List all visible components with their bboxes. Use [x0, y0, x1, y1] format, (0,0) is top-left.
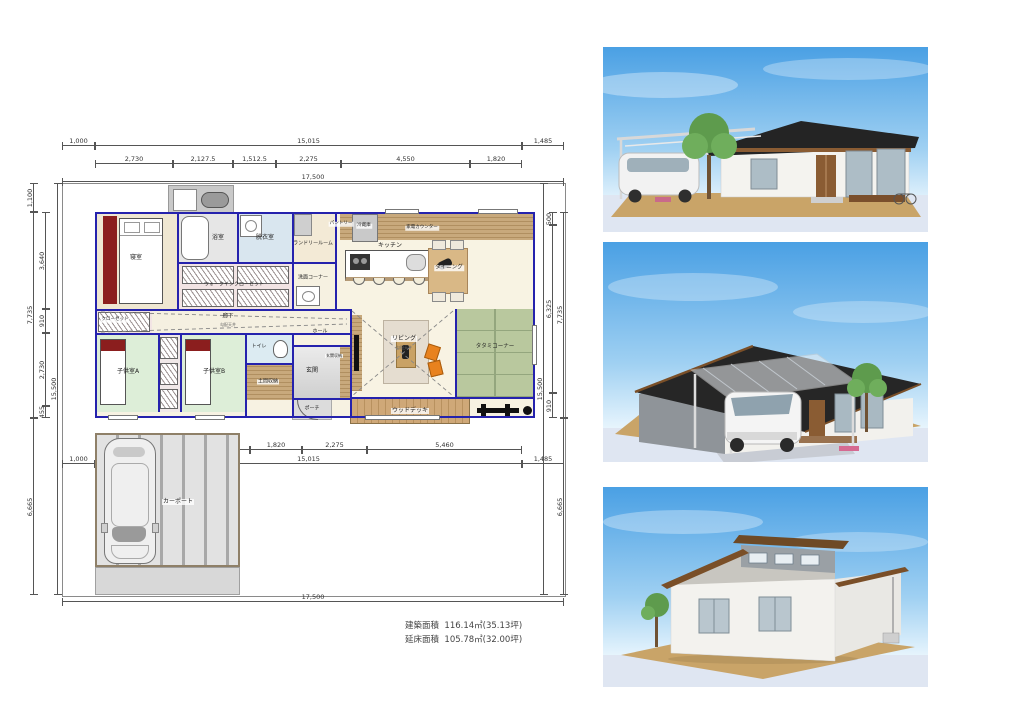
car-mirror: [152, 523, 159, 533]
dim-top-seg1: 2,730: [95, 163, 173, 164]
dim-label: 2,275: [299, 155, 318, 163]
dim-label: 6,325: [545, 300, 553, 319]
dim-label: 17,500: [302, 173, 325, 181]
label-kids-a: 子供室A: [117, 369, 139, 375]
building-area-label: 建築面積: [405, 621, 439, 631]
dim-label: 15,500: [50, 378, 58, 401]
dim-label: 17,500: [302, 593, 325, 601]
cloud: [603, 510, 763, 534]
window: [846, 151, 872, 197]
cloud: [608, 273, 778, 301]
dim-label: 1,000: [69, 137, 88, 145]
heater-box: [173, 189, 197, 211]
car-roof-line: [111, 463, 149, 527]
heater-tank: [201, 192, 229, 208]
car-top-view: [104, 438, 156, 564]
dim-label: 15,500: [536, 378, 544, 401]
deck-front: [799, 436, 857, 443]
dim-label: 1,512.5: [242, 155, 267, 163]
dim-bottom-total: 17,500: [62, 601, 564, 602]
tree-foliage: [641, 606, 655, 620]
house-rear-wall: [671, 579, 835, 661]
planter-box: [849, 195, 905, 202]
tree-foliage: [869, 379, 887, 397]
area-summary: 建築面積 116.14㎡(35.13坪) 延床面積 105.78㎡(32.00坪…: [405, 620, 522, 647]
window: [365, 415, 440, 420]
van-wheel: [780, 438, 794, 452]
label-wood-deck: ウッドデッキ: [391, 408, 429, 414]
render-rear-svg: [603, 487, 928, 687]
floor-area-row: 延床面積 105.78㎡(32.00坪): [405, 634, 522, 648]
dim-right-bottom: 6,665: [563, 418, 564, 595]
dim-right-sub1: 500: [552, 212, 553, 225]
building-area-value: 116.14㎡(35.13坪): [444, 621, 522, 631]
concrete-apron: [95, 567, 240, 595]
van-windows: [627, 158, 689, 172]
label-living: リビング: [391, 336, 417, 342]
van-wheel: [679, 190, 692, 203]
tree-trunk: [707, 155, 711, 199]
window: [385, 209, 419, 214]
label-bedroom: 寝室: [130, 255, 142, 261]
exterior-render-side: [603, 242, 928, 462]
dim-label: 2,127.5: [191, 155, 216, 163]
dim-left-main: 7,735: [33, 212, 34, 418]
dim-right-sub3: 910: [552, 393, 553, 418]
dim-label: 1,100: [26, 188, 34, 207]
window: [108, 415, 138, 420]
car-rear-window: [113, 447, 145, 457]
dim-label: 1,820: [487, 155, 506, 163]
dim-top-width: 15,015: [95, 145, 522, 146]
window: [877, 149, 905, 197]
dim-top-offset-left: 1,000: [62, 145, 95, 146]
label-bath: 浴室: [212, 235, 224, 241]
dim-label: 2,730: [125, 155, 144, 163]
dim-label: 1,485: [534, 137, 553, 145]
label-pantry: パントリー: [329, 222, 354, 227]
label-doma-storage: 土間収納: [257, 380, 279, 385]
clerestory-window: [801, 555, 819, 565]
clerestory-window: [749, 553, 767, 563]
dim-bottom-seg5: 2,275: [302, 449, 367, 450]
window: [751, 159, 777, 189]
label-laundry: ランドリールーム: [293, 242, 333, 247]
water-heater-unit: [168, 185, 234, 214]
dim-left-sub2: 910: [45, 309, 46, 333]
dim-label: 6,665: [26, 497, 34, 516]
tree-trunk: [865, 390, 868, 432]
van-wheel: [629, 190, 642, 203]
label-appliance-counter: 家電カウンター: [405, 226, 439, 231]
dim-right-total: 15,500: [543, 183, 544, 595]
flowers: [839, 446, 859, 451]
label-living-note: 勾配天井: [396, 346, 412, 350]
label-kids-b: 子供室B: [203, 369, 225, 375]
dim-label: 15,015: [297, 137, 320, 145]
dim-label: 5,460: [435, 441, 454, 449]
dim-label: 4,550: [396, 155, 415, 163]
dim-label: 15,015: [297, 455, 320, 463]
dim-bottom-seg4: 1,820: [250, 449, 302, 450]
dim-top-seg4: 2,275: [276, 163, 341, 164]
dim-bottom-seg6: 5,460: [367, 449, 522, 450]
floor-area-label: 延床面積: [405, 635, 439, 645]
cloud: [763, 58, 928, 80]
dim-left-sub3: 2,730: [45, 333, 46, 406]
window: [861, 392, 883, 428]
label-wash-corner: 洗面コーナー: [298, 276, 328, 281]
tree-foliage: [847, 379, 865, 397]
dim-label: 7,735: [556, 306, 564, 325]
label-entrance-storage: 玄関収納: [325, 354, 343, 358]
dim-label: 3,640: [38, 251, 46, 270]
dim-right-sub2: 6,325: [552, 225, 553, 393]
car-windshield: [112, 527, 146, 542]
dim-label: 1,000: [69, 455, 88, 463]
van-wheel: [730, 438, 744, 452]
window: [532, 325, 537, 365]
dim-left-total: 15,500: [57, 183, 58, 595]
label-closet: クローゼット: [101, 318, 130, 323]
dim-top-total: 17,500: [62, 181, 564, 182]
label-toilet: トイレ: [251, 345, 266, 350]
dim-top-offset-right: 1,485: [522, 145, 564, 146]
render-front-svg: [603, 47, 928, 232]
dim-label: 910: [545, 399, 553, 411]
dim-right-main: 7,735: [563, 212, 564, 418]
dim-left-sub4: 455: [45, 406, 46, 418]
dim-left-sub1: 3,640: [45, 212, 46, 309]
dim-label: 2,730: [38, 360, 46, 379]
render-side-svg: [603, 242, 928, 462]
dim-label: 7,735: [26, 306, 34, 325]
label-hallway-note: 勾配天井: [220, 323, 236, 327]
tree-foliage: [711, 133, 737, 159]
dim-label: 6,665: [556, 497, 564, 516]
label-hall: ホール: [312, 330, 327, 335]
entry-step: [811, 197, 843, 203]
window: [195, 415, 225, 420]
label-tatami: タタミコーナー: [476, 344, 515, 350]
label-dining: ダイニング: [434, 265, 464, 271]
dim-top-seg3: 1,512.5: [233, 163, 276, 164]
dim-bottom-offset-left: 1,000: [62, 463, 95, 464]
exterior-render-front: [603, 47, 928, 232]
dim-label: 910: [38, 315, 46, 327]
label-porch: ポーチ: [304, 407, 319, 412]
window: [478, 209, 518, 214]
clerestory-window: [775, 554, 793, 564]
tree-trunk: [655, 613, 658, 647]
label-entrance: 玄関: [306, 368, 318, 374]
label-kitchen: キッチン: [378, 243, 402, 249]
front-door: [809, 400, 825, 436]
floor-area-value: 105.78㎡(32.00坪): [444, 635, 522, 645]
label-fridge: 冷蔵庫: [356, 224, 372, 229]
flowers: [655, 197, 671, 202]
dim-label: 2,275: [325, 441, 344, 449]
tree-foliage: [682, 133, 708, 159]
dim-top-seg2: 2,127.5: [173, 163, 233, 164]
dim-left-bottom: 6,665: [33, 418, 34, 595]
label-wic: ウォークインクローゼット: [204, 283, 264, 288]
dim-label: 1,820: [267, 441, 286, 449]
cloud: [793, 301, 928, 323]
dim-top-seg5: 4,550: [341, 163, 470, 164]
label-carport: カーポート: [162, 499, 194, 505]
dim-top-seg6: 1,820: [470, 163, 522, 164]
car-hood: [111, 545, 149, 559]
label-hallway: 廊下: [222, 314, 233, 320]
building-area-row: 建築面積 116.14㎡(35.13坪): [405, 620, 522, 634]
ac-unit: [883, 633, 899, 643]
dim-left-offset-top: 1,100: [33, 183, 34, 212]
car-mirror: [101, 523, 108, 533]
label-dressing: 脱衣室: [256, 235, 274, 241]
dim-label: 455: [38, 406, 46, 418]
dim-label: 500: [545, 212, 553, 224]
exterior-render-rear: [603, 487, 928, 687]
